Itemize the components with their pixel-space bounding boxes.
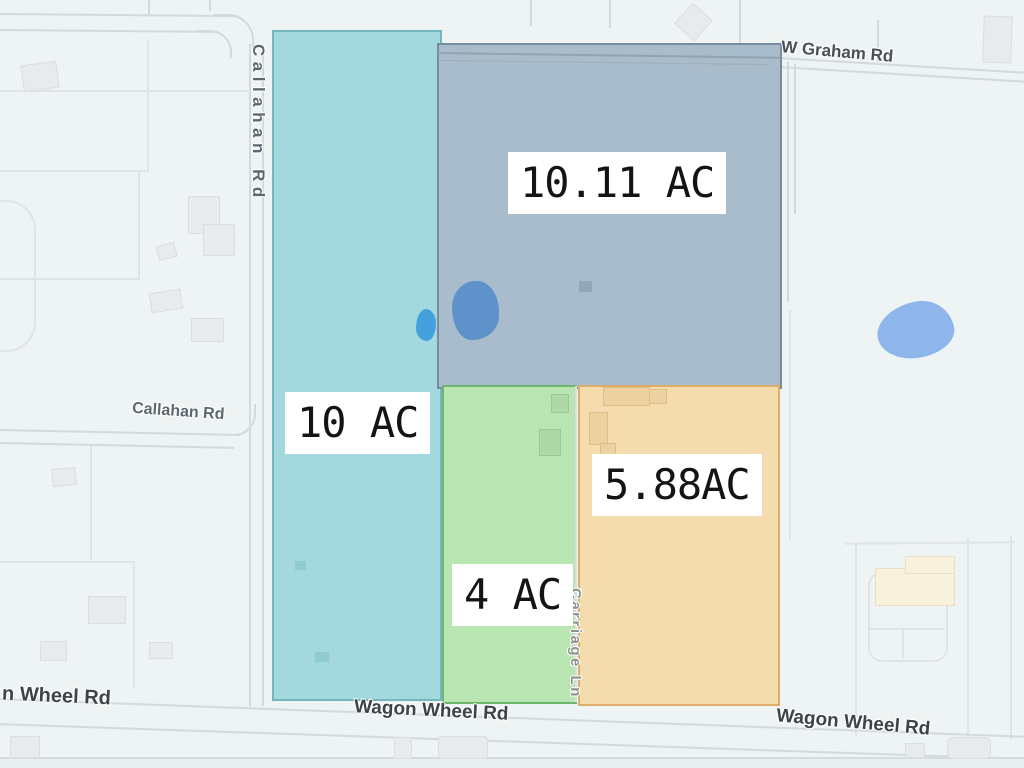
building-footprint: [149, 642, 173, 659]
parcel-line: [148, 0, 150, 15]
building-footprint: [649, 389, 667, 404]
building-footprint: [315, 652, 329, 662]
building-footprint: [203, 224, 235, 256]
map-canvas[interactable]: Callahan Rd W Graham Rd Callahan Rd Carr…: [0, 0, 1024, 768]
building-footprint: [674, 3, 713, 42]
road-label-callahan-horizontal: Callahan Rd: [131, 400, 224, 424]
building-footprint: [579, 281, 592, 292]
road-line-callahan-h: [0, 429, 240, 436]
road-label-wagon-wheel-right: Wagon Wheel Rd: [775, 705, 931, 740]
building-footprint: [149, 289, 184, 314]
road-line: [794, 64, 796, 214]
parcel-line: [147, 40, 149, 172]
area-label-4-ac: 4 AC: [452, 564, 573, 626]
building-footprint: [88, 596, 126, 624]
parcel-line: [138, 170, 140, 280]
parcel-line: [133, 561, 135, 689]
building-footprint: [394, 737, 412, 759]
driveway-loop: [0, 200, 36, 352]
building-footprint: [20, 61, 59, 93]
parcel-line: [845, 541, 1015, 544]
building-footprint: [51, 467, 76, 487]
road-label-callahan-vertical: Callahan Rd: [248, 44, 268, 203]
bottom-band: [0, 757, 1024, 768]
driveway-line: [902, 628, 904, 658]
road-label-wagon-wheel-left: n Wheel Rd: [2, 683, 112, 711]
building-footprint: [589, 412, 608, 445]
parcel-line: [209, 0, 211, 11]
pond: [416, 309, 436, 341]
area-label-10-ac: 10 AC: [285, 392, 430, 454]
parcel-line: [967, 538, 969, 738]
building-footprint: [982, 16, 1013, 64]
parcel-line: [855, 545, 857, 737]
driveway-line: [868, 628, 944, 630]
building-footprint: [539, 429, 561, 456]
road-line: [787, 62, 789, 302]
parcel-line: [789, 310, 791, 540]
building-footprint: [40, 641, 67, 661]
road-line: [0, 13, 238, 17]
parcel-line: [530, 0, 532, 26]
parcel-line: [1010, 536, 1012, 740]
road-line: [0, 29, 218, 33]
parcel-northeast[interactable]: [437, 43, 782, 389]
building-footprint: [295, 561, 306, 570]
building-footprint: [155, 242, 177, 261]
pond: [873, 296, 959, 365]
parcel-line: [0, 561, 134, 563]
building-footprint: [10, 736, 40, 758]
building-footprint: [905, 743, 925, 758]
pond: [452, 281, 499, 340]
road-line-callahan-h: [0, 442, 234, 449]
parcel-southeast[interactable]: [578, 385, 780, 706]
parcel-west[interactable]: [272, 30, 442, 701]
area-label-10-11-ac: 10.11 AC: [508, 152, 726, 214]
parcel-line: [90, 445, 92, 563]
building-footprint: [603, 387, 650, 406]
parcel-line: [0, 170, 146, 172]
building-footprint: [947, 737, 991, 759]
parcel-line: [609, 0, 611, 28]
area-label-5-88-ac: 5.88AC: [592, 454, 762, 516]
building-footprint: [551, 394, 569, 413]
parcel-line: [739, 0, 741, 48]
road-curve: [228, 404, 256, 436]
building-footprint: [438, 736, 488, 759]
building-footprint: [905, 556, 955, 574]
building-footprint: [191, 318, 224, 342]
